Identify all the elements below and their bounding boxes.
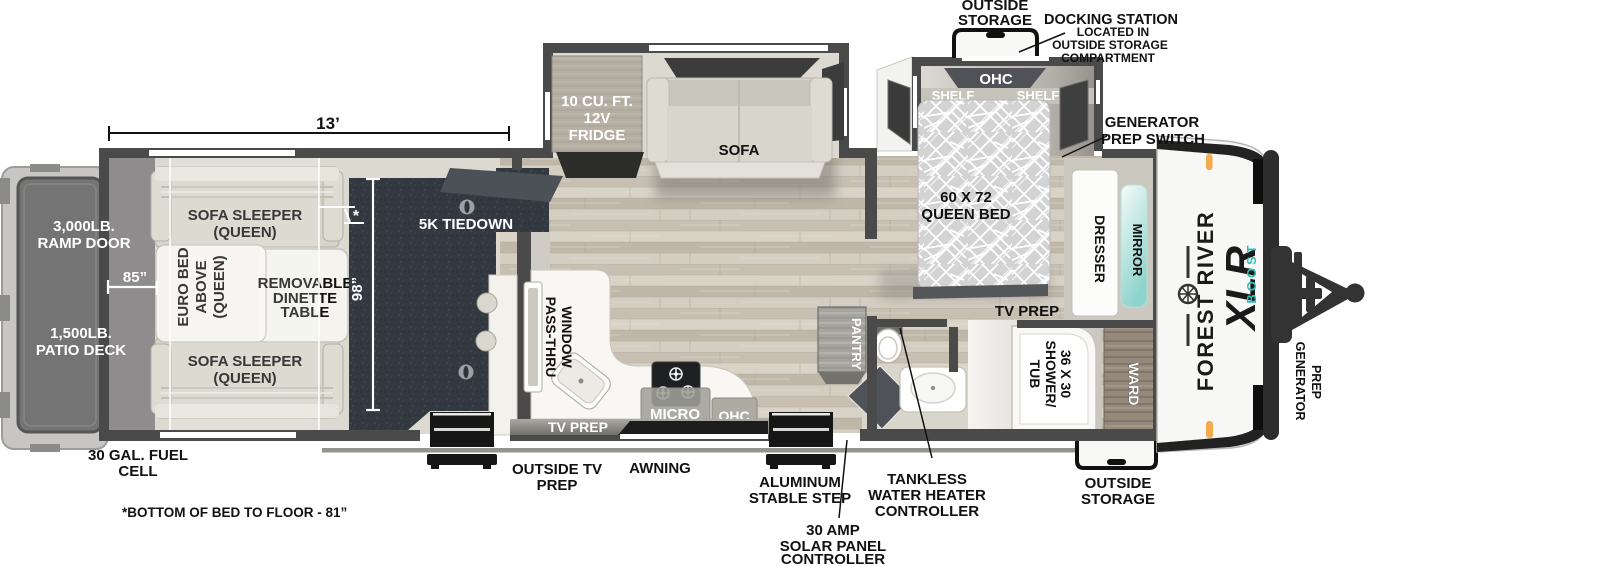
svg-text:36 X 30: 36 X 30 (1058, 350, 1074, 398)
svg-text:PANTRY: PANTRY (849, 318, 864, 370)
svg-text:AWNING: AWNING (629, 460, 691, 477)
svg-text:*: * (353, 208, 360, 225)
svg-text:OUTSIDE: OUTSIDE (1085, 475, 1152, 492)
svg-text:PREP: PREP (537, 477, 578, 494)
svg-text:GENERATOR: GENERATOR (1105, 114, 1200, 131)
svg-text:PREP SWITCH: PREP SWITCH (1101, 131, 1205, 148)
svg-text:60 X 72: 60 X 72 (940, 189, 992, 206)
svg-text:TUB: TUB (1027, 360, 1043, 389)
svg-text:FRIDGE: FRIDGE (569, 127, 626, 144)
svg-text:TV PREP: TV PREP (548, 419, 608, 435)
svg-text:85”: 85” (123, 269, 147, 286)
svg-text:CONTROLLER: CONTROLLER (781, 551, 885, 566)
svg-text:DRESSER: DRESSER (1092, 215, 1108, 283)
svg-text:5K TIEDOWN: 5K TIEDOWN (419, 216, 513, 233)
svg-text:MIRROR: MIRROR (1130, 224, 1145, 277)
svg-text:BOOST: BOOST (1244, 242, 1259, 303)
svg-text:PASS-THRU: PASS-THRU (543, 297, 559, 378)
svg-text:STORAGE: STORAGE (958, 12, 1032, 29)
svg-text:SHOWER/: SHOWER/ (1043, 341, 1059, 408)
svg-text:GENERATOR: GENERATOR (1293, 342, 1307, 421)
svg-text:WATER HEATER: WATER HEATER (868, 487, 986, 504)
svg-text:TANKLESS: TANKLESS (887, 471, 967, 488)
svg-text:QUEEN BED: QUEEN BED (921, 206, 1010, 223)
svg-text:LOCATED IN: LOCATED IN (1077, 25, 1149, 39)
svg-text:SOFA: SOFA (719, 142, 760, 159)
svg-text:10 CU. FT.: 10 CU. FT. (561, 93, 633, 110)
svg-text:98”: 98” (349, 277, 366, 301)
svg-text:OUTSIDE TV: OUTSIDE TV (512, 461, 602, 478)
svg-text:30 GAL. FUEL: 30 GAL. FUEL (88, 447, 188, 464)
svg-text:30 AMP: 30 AMP (806, 522, 860, 539)
svg-text:COMPARTMENT: COMPARTMENT (1061, 51, 1155, 65)
svg-text:RAMP DOOR: RAMP DOOR (37, 235, 130, 252)
svg-text:OHC: OHC (979, 71, 1013, 88)
svg-text:*BOTTOM OF BED TO FLOOR - 81”: *BOTTOM OF BED TO FLOOR - 81” (122, 505, 347, 520)
svg-text:PREP: PREP (1309, 365, 1323, 399)
svg-text:TV PREP: TV PREP (995, 303, 1059, 320)
svg-text:PATIO DECK: PATIO DECK (36, 342, 126, 359)
svg-text:WARD: WARD (1126, 363, 1142, 406)
svg-text:13’: 13’ (316, 114, 340, 133)
svg-text:1,500LB.: 1,500LB. (50, 325, 112, 342)
svg-text:STORAGE: STORAGE (1081, 491, 1155, 508)
svg-text:12V: 12V (584, 110, 611, 127)
svg-text:FOREST RIVER: FOREST RIVER (1193, 211, 1218, 392)
svg-text:WINDOW: WINDOW (559, 306, 575, 368)
svg-text:CONTROLLER: CONTROLLER (875, 503, 979, 520)
svg-text:3,000LB.: 3,000LB. (53, 218, 115, 235)
svg-text:ALUMINUM: ALUMINUM (759, 474, 841, 491)
svg-text:CELL: CELL (118, 463, 157, 480)
svg-text:STABLE STEP: STABLE STEP (749, 490, 851, 507)
svg-text:OUTSIDE STORAGE: OUTSIDE STORAGE (1052, 38, 1168, 52)
